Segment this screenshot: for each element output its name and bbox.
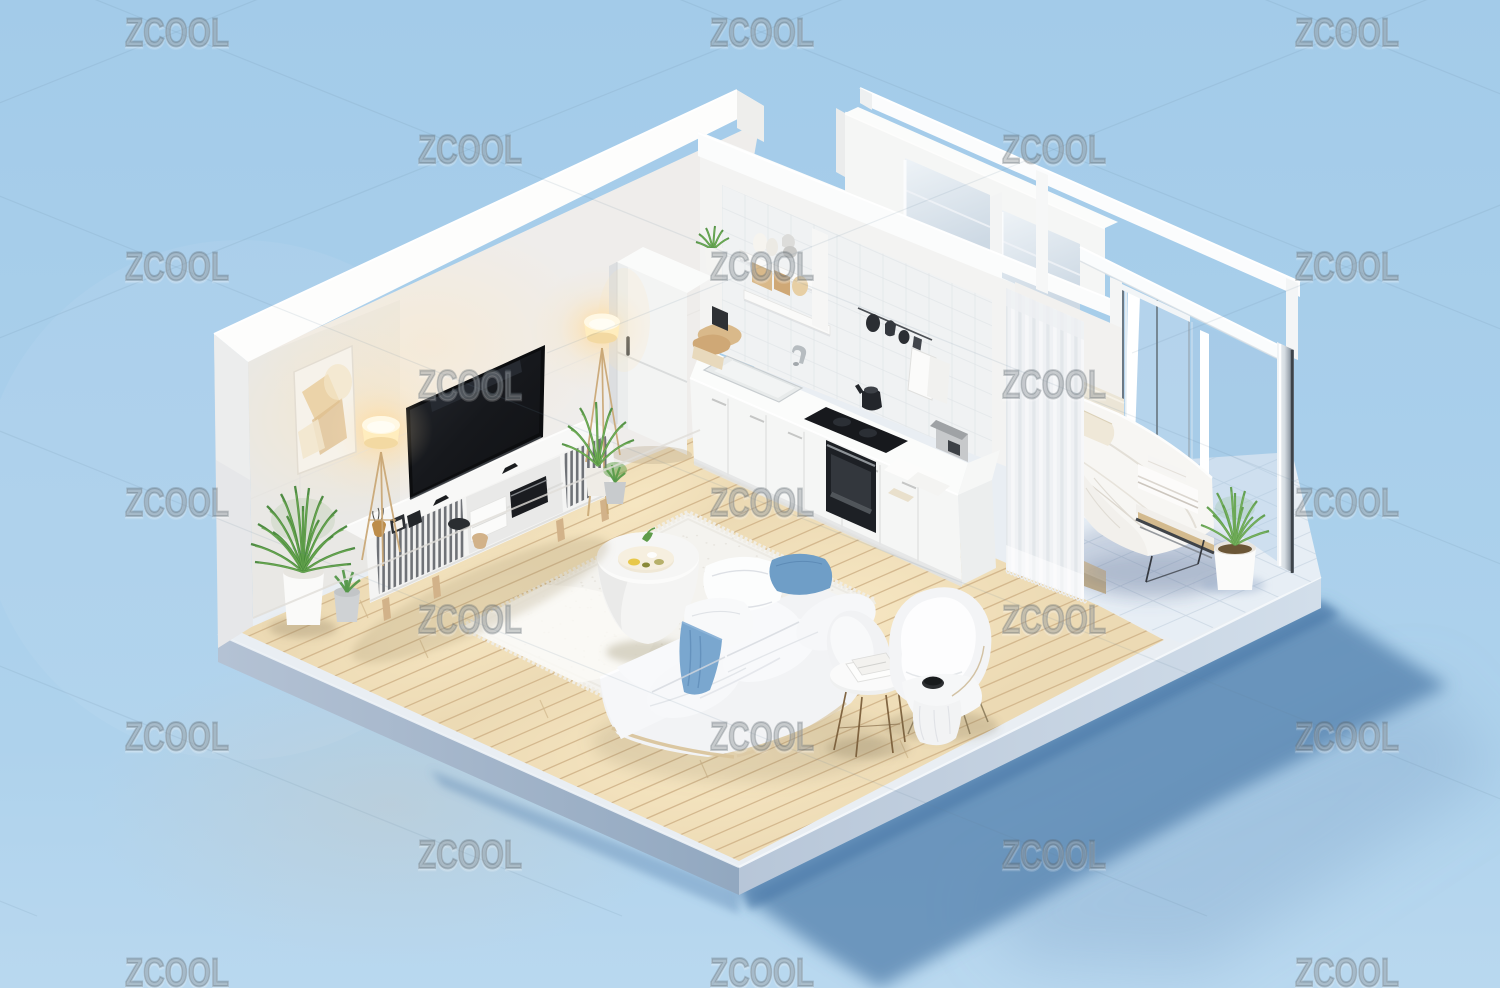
svg-text:ZCOOL: ZCOOL	[125, 715, 229, 759]
svg-text:ZCOOL: ZCOOL	[125, 481, 229, 525]
svg-text:ZCOOL: ZCOOL	[710, 11, 814, 55]
svg-text:ZCOOL: ZCOOL	[125, 245, 229, 289]
svg-text:ZCOOL: ZCOOL	[1002, 363, 1106, 407]
svg-text:ZCOOL: ZCOOL	[1295, 245, 1399, 289]
svg-text:ZCOOL: ZCOOL	[1295, 951, 1399, 988]
svg-text:ZCOOL: ZCOOL	[710, 245, 814, 289]
svg-text:ZCOOL: ZCOOL	[418, 833, 522, 877]
svg-text:ZCOOL: ZCOOL	[1295, 715, 1399, 759]
svg-text:ZCOOL: ZCOOL	[710, 715, 814, 759]
svg-text:ZCOOL: ZCOOL	[418, 363, 522, 407]
svg-text:ZCOOL: ZCOOL	[418, 128, 522, 172]
svg-text:ZCOOL: ZCOOL	[125, 11, 229, 55]
svg-text:ZCOOL: ZCOOL	[1002, 833, 1106, 877]
svg-text:ZCOOL: ZCOOL	[1295, 11, 1399, 55]
svg-text:ZCOOL: ZCOOL	[710, 481, 814, 525]
svg-text:ZCOOL: ZCOOL	[710, 951, 814, 988]
svg-text:ZCOOL: ZCOOL	[1002, 128, 1106, 172]
svg-text:ZCOOL: ZCOOL	[1295, 481, 1399, 525]
svg-text:ZCOOL: ZCOOL	[125, 951, 229, 988]
svg-text:ZCOOL: ZCOOL	[418, 598, 522, 642]
svg-text:ZCOOL: ZCOOL	[1002, 598, 1106, 642]
